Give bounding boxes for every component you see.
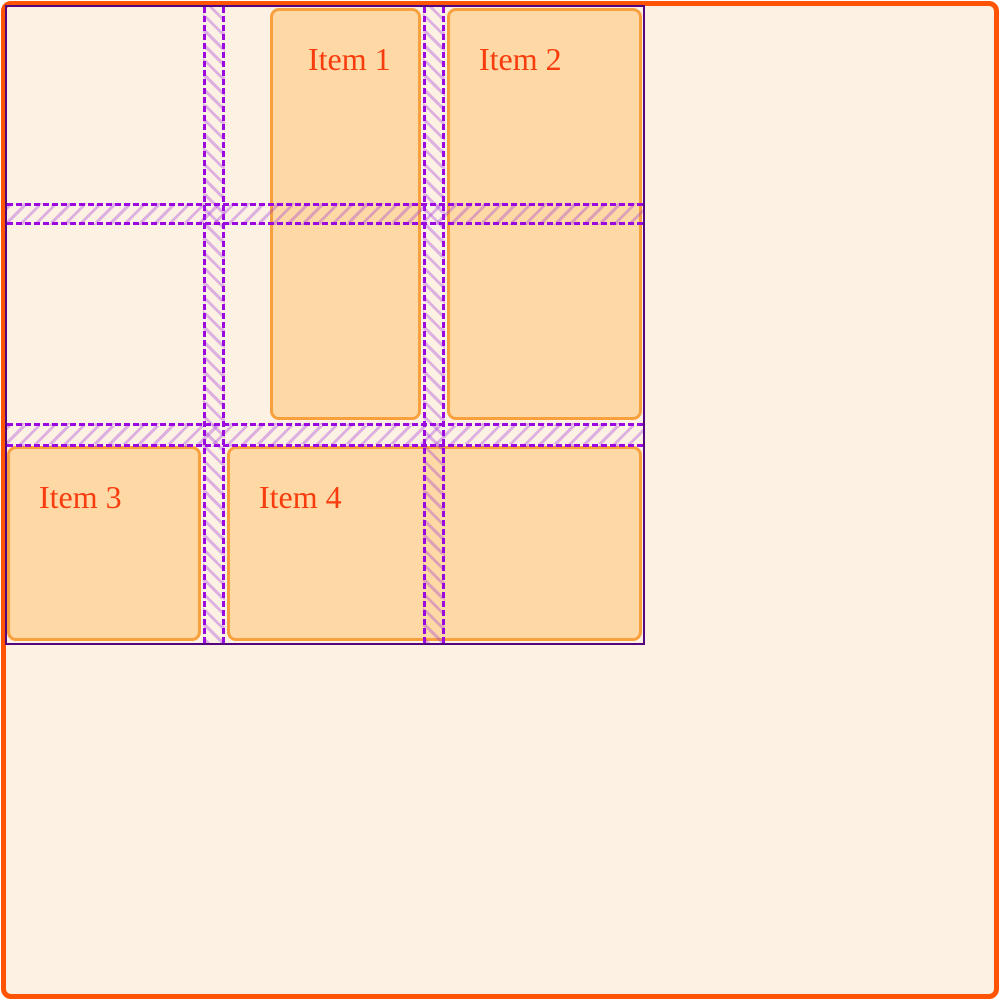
column-gap-overlay-2 [423,7,445,643]
grid-item-4-label: Item 4 [259,478,631,516]
grid-item-3: Item 3 [7,446,201,641]
grid-item-3-label: Item 3 [39,478,190,516]
grid-item-2-label: Item 2 [479,40,631,78]
row-gap-overlay-2 [7,423,643,447]
column-gap-overlay-1 [203,7,225,643]
grid-item-1-label: Item 1 [308,40,410,78]
row-gap-overlay-1 [7,203,643,225]
browser-viewport: Item 1 Item 2 Item 3 Item 4 [0,0,1000,1000]
